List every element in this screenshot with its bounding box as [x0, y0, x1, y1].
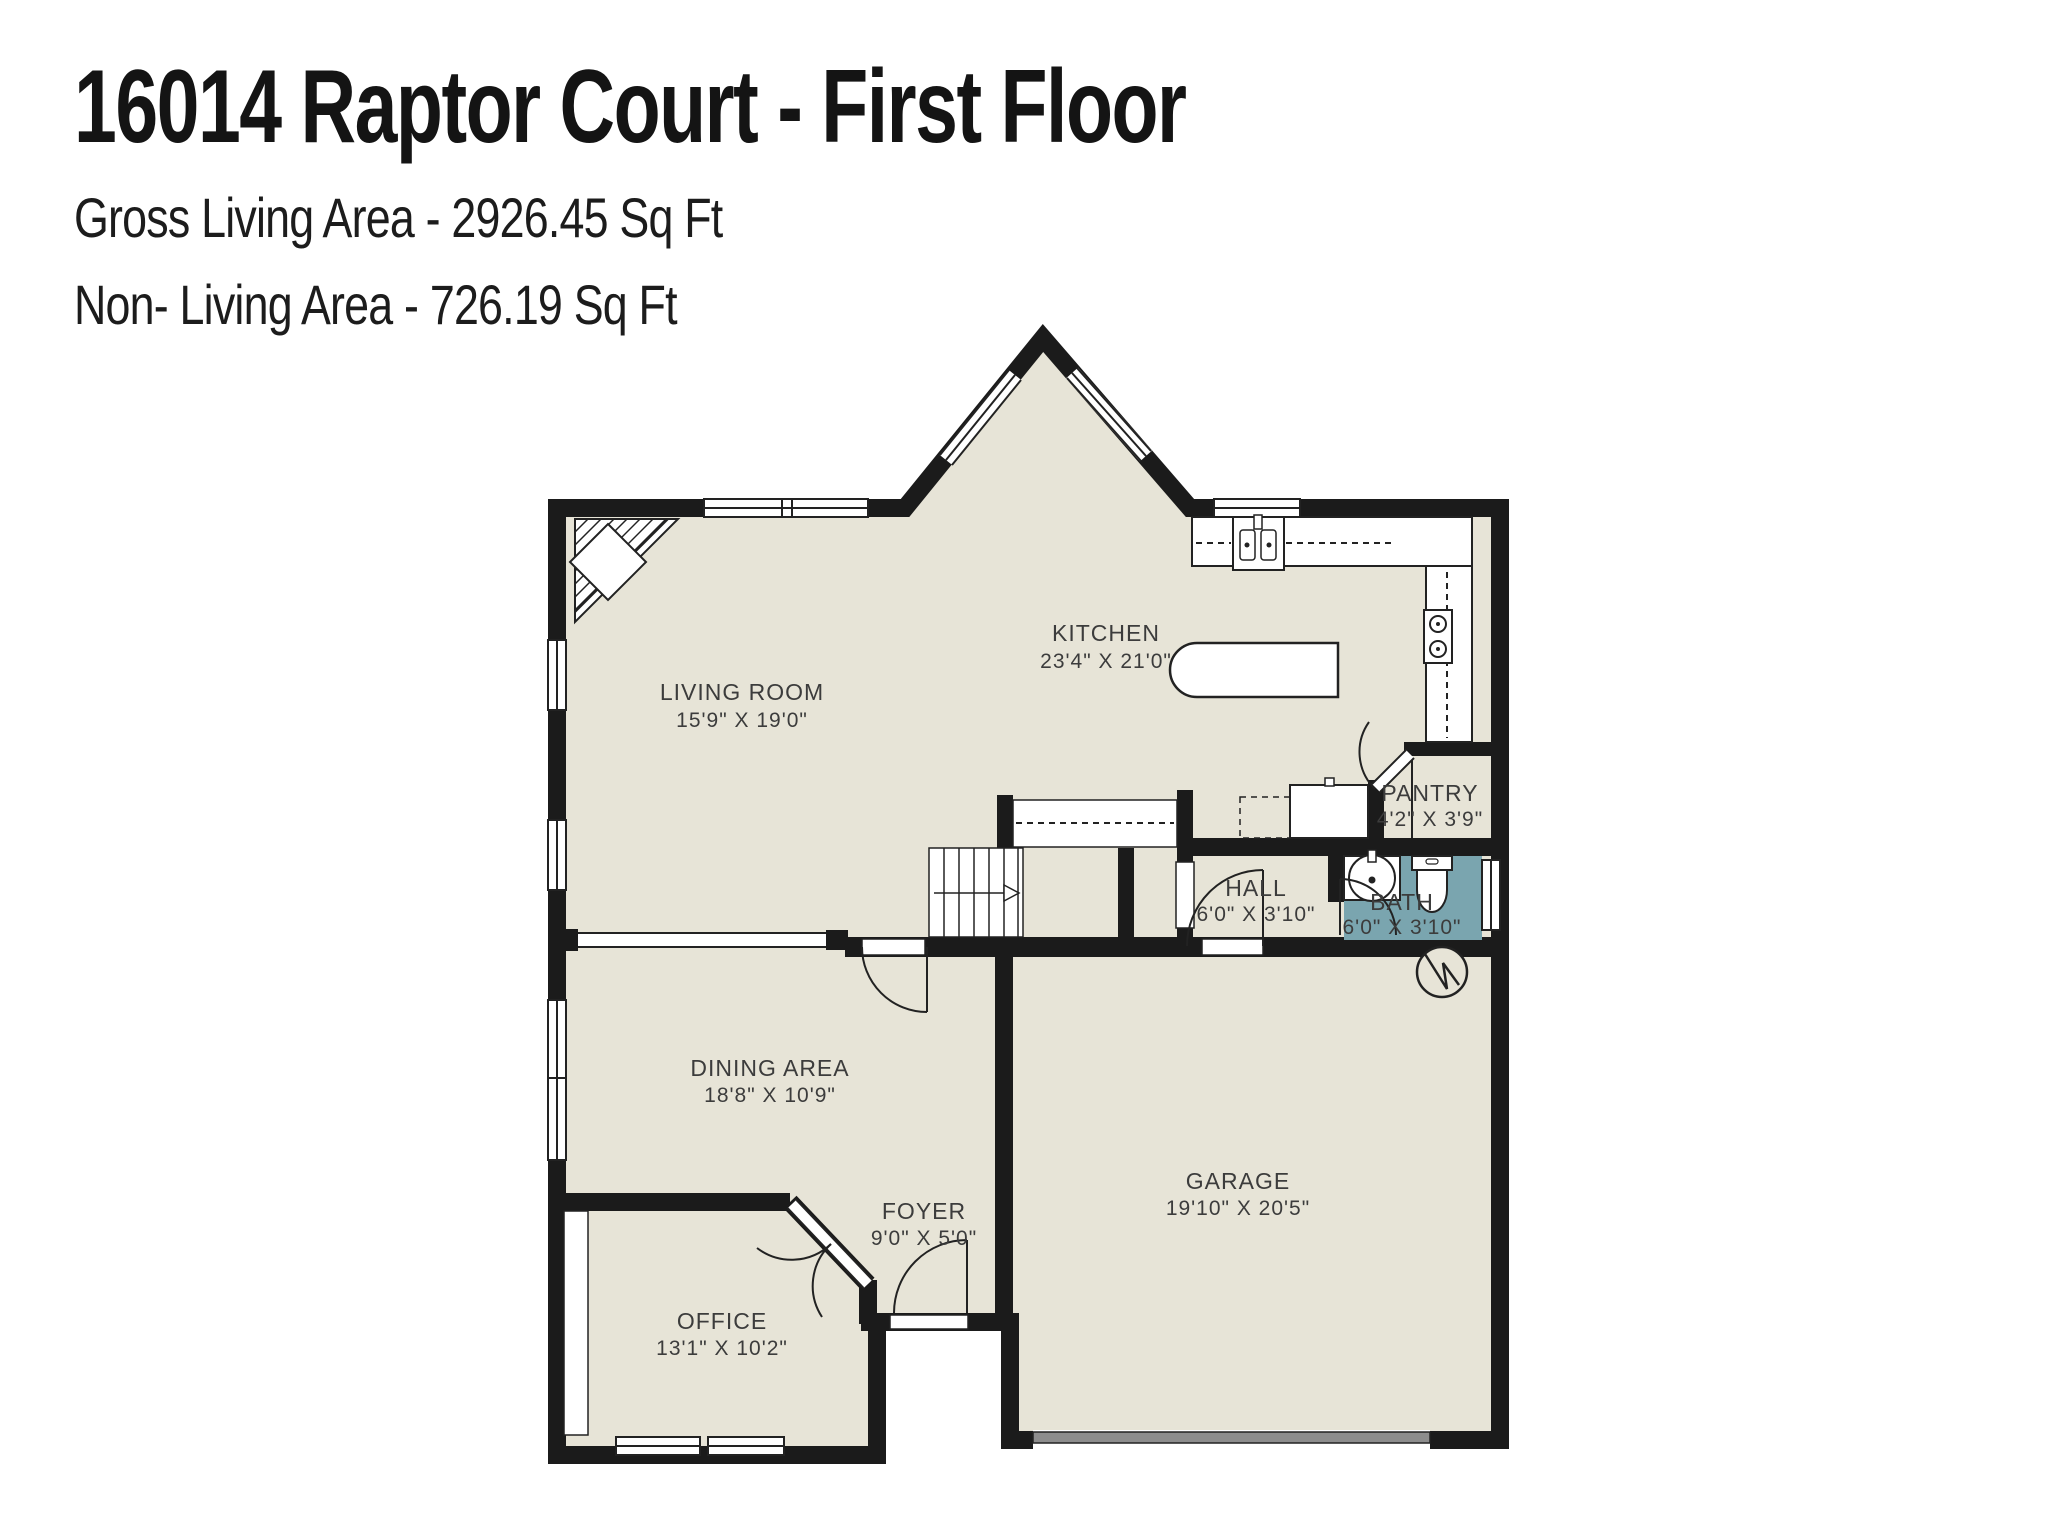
room-divider — [557, 929, 848, 951]
office-dims: 13'1" X 10'2" — [656, 1337, 788, 1360]
garage-door — [1033, 1430, 1430, 1450]
staircase — [929, 848, 1023, 937]
living-room-dims: 15'9" X 19'0" — [676, 709, 808, 732]
foyer-label: FOYER — [882, 1198, 966, 1224]
gross-living-area-text: Gross Living Area - 2926.45 Sq Ft — [74, 185, 1276, 250]
hall-dims: 6'0" X 3'10" — [1197, 903, 1316, 926]
kitchen-island — [1170, 643, 1338, 697]
living-room-label: LIVING ROOM — [660, 679, 824, 705]
pantry-label: PANTRY — [1381, 780, 1478, 806]
dining-area-label: DINING AREA — [690, 1055, 849, 1081]
refrigerator-icon — [1290, 778, 1368, 838]
kitchen-dims: 23'4" X 21'0" — [1040, 650, 1172, 673]
stove-icon — [1424, 610, 1452, 663]
bath-label: BATH — [1370, 889, 1434, 915]
kitchen-sink-icon — [1233, 515, 1284, 570]
hall-label: HALL — [1225, 875, 1287, 901]
kitchen-label: KITCHEN — [1052, 620, 1160, 646]
foyer-dims: 9'0" X 5'0" — [871, 1227, 977, 1250]
dining-area-dims: 18'8" X 10'9" — [704, 1084, 836, 1107]
garage-dims: 19'10" X 20'5" — [1166, 1197, 1310, 1220]
bath-dims: 6'0" X 3'10" — [1343, 916, 1462, 939]
page-title: 16014 Raptor Court - First Floor — [74, 48, 1185, 167]
plan-header: 16014 Raptor Court - First Floor Gross L… — [74, 48, 1576, 337]
office-label: OFFICE — [677, 1308, 767, 1334]
water-heater-icon — [1417, 947, 1467, 997]
garage-label: GARAGE — [1186, 1168, 1290, 1194]
pantry-dims: 4'2" X 3'9" — [1377, 808, 1483, 831]
non-living-area-text: Non- Living Area - 726.19 Sq Ft — [74, 272, 1276, 337]
